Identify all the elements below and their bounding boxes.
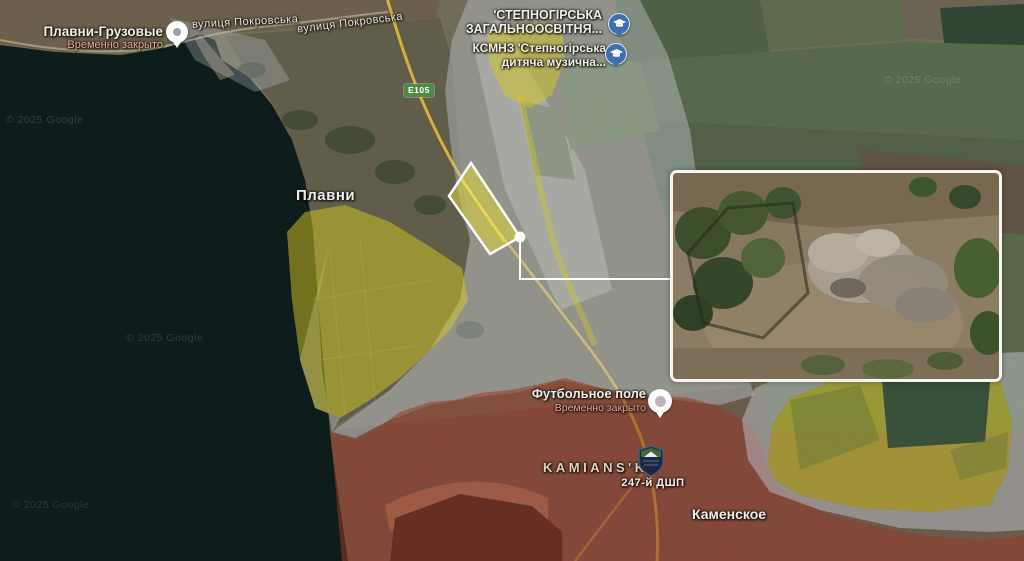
drone-photo [673,173,999,379]
route-badge-e105: E105 [404,84,434,97]
map-canvas[interactable]: Плавни-Грузовые Временно закрыто вулиця … [0,0,1024,561]
graduation-cap-icon [610,49,623,60]
strike-inset-photo[interactable] [670,170,1002,382]
google-copyright: © 2025 Google [126,332,203,344]
port-pin[interactable] [166,21,188,43]
google-copyright: © 2025 Google [12,499,89,511]
google-copyright: © 2025 Google [884,74,961,86]
music-school-pin[interactable] [605,43,627,65]
military-unit-badge[interactable] [637,445,665,482]
school-pin[interactable] [608,13,630,35]
unit-shield-icon [637,445,665,477]
google-copyright: © 2025 Google [6,114,83,126]
football-field-pin[interactable] [648,389,672,413]
graduation-cap-icon [613,19,626,30]
